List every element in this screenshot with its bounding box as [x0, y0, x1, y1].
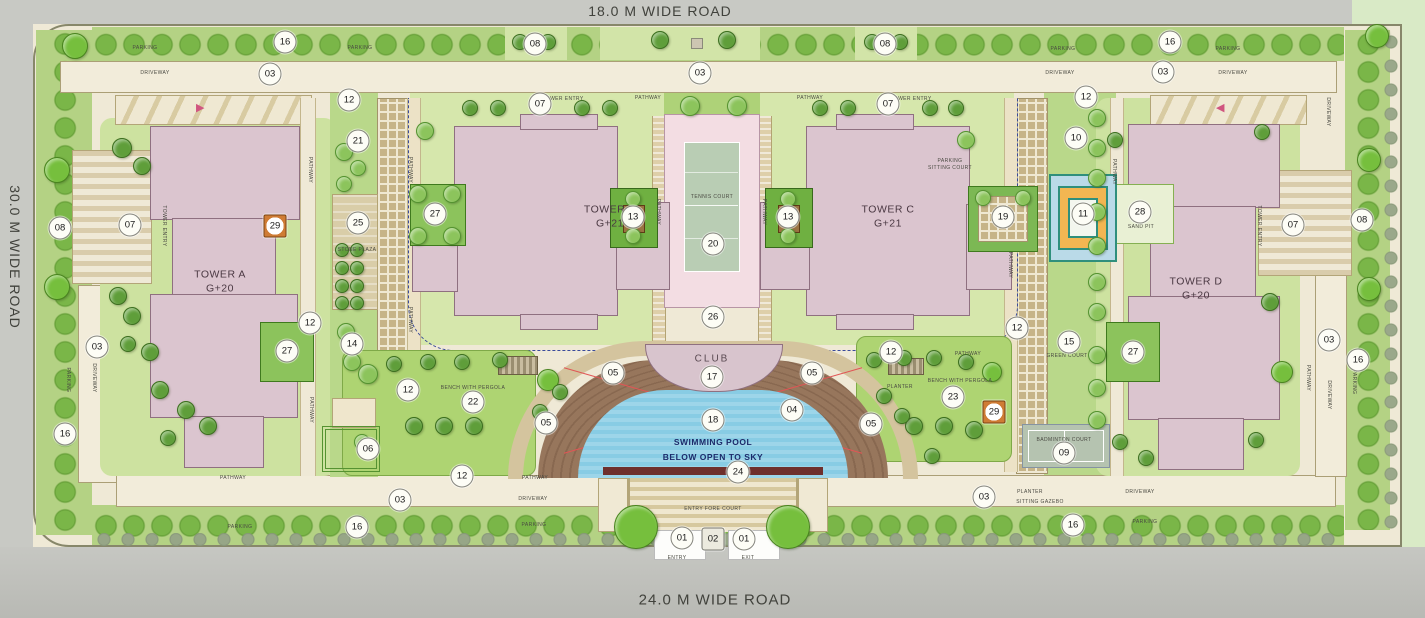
- plan-label: PARKING: [65, 368, 71, 393]
- plan-marker: 25: [347, 212, 370, 235]
- plan-marker: 20: [702, 233, 725, 256]
- tree: [336, 176, 352, 192]
- plan-marker: 05: [860, 413, 883, 436]
- plan-marker: 03: [1318, 329, 1341, 352]
- plan-label: PLANTER: [887, 384, 913, 390]
- tree: [335, 279, 349, 293]
- plan-label: DRIVEWAY: [140, 70, 169, 76]
- tower-c-label: TOWER C G+21: [862, 203, 915, 230]
- tower-d-name: TOWER D: [1170, 275, 1223, 289]
- plan-marker: 03: [973, 486, 996, 509]
- plan-label: DRIVEWAY: [1325, 97, 1331, 126]
- tree: [350, 279, 364, 293]
- plan-marker: 27: [424, 203, 447, 226]
- plan-marker: 10: [1065, 127, 1088, 150]
- plan-label: TENNIS COURT: [691, 194, 733, 200]
- plan-label: TOWER ENTRY: [1256, 205, 1262, 246]
- tree: [160, 430, 176, 446]
- tower-c-name: TOWER C: [862, 203, 915, 217]
- tree: [1271, 361, 1293, 383]
- plan-label: TOWER ENTRY: [161, 205, 167, 246]
- tree: [420, 354, 436, 370]
- plan-marker: 16: [1159, 31, 1182, 54]
- tree: [1088, 139, 1106, 157]
- tree: [462, 100, 478, 116]
- tree: [926, 350, 942, 366]
- plan-marker: 03: [389, 489, 412, 512]
- plan-label: CLUB: [695, 354, 730, 365]
- tree: [358, 364, 378, 384]
- plan-label: PATHWAY: [797, 95, 823, 101]
- tree: [1357, 148, 1381, 172]
- plan-marker: 18: [702, 409, 725, 432]
- tree: [718, 31, 736, 49]
- plan-marker: 08: [1351, 209, 1374, 232]
- tree: [44, 157, 70, 183]
- plan-marker: 15: [1058, 331, 1081, 354]
- plan-marker: 05: [535, 412, 558, 435]
- plan-marker: 12: [397, 379, 420, 402]
- plan-label: PATHWAY: [308, 397, 314, 423]
- plan-marker: 03: [689, 62, 712, 85]
- plan-label: SITTING COURT: [928, 165, 972, 171]
- plan-label: EXIT: [742, 555, 755, 561]
- plan-marker: 06: [357, 438, 380, 461]
- tree: [1088, 237, 1106, 255]
- tree: [350, 296, 364, 310]
- tree: [840, 100, 856, 116]
- plan-marker: 09: [1053, 442, 1076, 465]
- plan-label: PARKING: [522, 522, 547, 528]
- tree: [151, 381, 169, 399]
- tree: [1138, 450, 1154, 466]
- plan-marker: 01: [733, 528, 756, 551]
- tree: [1088, 346, 1106, 364]
- plan-label: PATHWAY: [1305, 365, 1311, 391]
- plan-label: PARKING: [133, 45, 158, 51]
- plan-marker: 11: [1072, 203, 1095, 226]
- plan-marker: 24: [727, 461, 750, 484]
- plan-marker: 16: [1062, 514, 1085, 537]
- plan-label: PATHWAY: [407, 157, 413, 183]
- plan-label: PATHWAY: [522, 475, 548, 481]
- plan-marker: 12: [338, 89, 361, 112]
- plan-label: ENTRY: [668, 555, 687, 561]
- plan-marker: 23: [942, 386, 965, 409]
- tree: [812, 100, 828, 116]
- plan-label: PARKING: [228, 524, 253, 530]
- tree: [454, 354, 470, 370]
- plan-label: PATHWAY: [220, 475, 246, 481]
- plan-label: PARKING: [938, 158, 963, 164]
- plan-marker: 21: [347, 130, 370, 153]
- tree: [1248, 432, 1264, 448]
- tree: [922, 100, 938, 116]
- plan-marker: 08: [874, 33, 897, 56]
- tree: [120, 336, 136, 352]
- plan-label: PARKING: [1133, 519, 1158, 525]
- tree: [552, 384, 568, 400]
- tree: [1088, 169, 1106, 187]
- tree: [965, 421, 983, 439]
- tree: [335, 261, 349, 275]
- tree: [876, 388, 892, 404]
- plan-marker: 26: [702, 306, 725, 329]
- plan-marker: 03: [86, 336, 109, 359]
- plan-label: PATHWAY: [955, 351, 981, 357]
- plan-label: DRIVEWAY: [1045, 70, 1074, 76]
- plan-marker: 05: [602, 362, 625, 385]
- plan-label: PLANTER: [1017, 489, 1043, 495]
- tree: [177, 401, 195, 419]
- plan-label: ENTRY FORE COURT: [684, 506, 742, 512]
- plan-marker: 16: [346, 516, 369, 539]
- tree: [614, 505, 658, 549]
- tree: [680, 96, 700, 116]
- plan-label: SWIMMING POOL: [674, 437, 752, 447]
- tree: [780, 228, 796, 244]
- plan-marker: 29: [264, 215, 287, 238]
- tree: [1107, 132, 1123, 148]
- tree: [1112, 434, 1128, 450]
- plan-label: PARKING: [348, 45, 373, 51]
- plan-marker: 13: [622, 206, 645, 229]
- plan-marker: 29: [983, 401, 1006, 424]
- plan-label: PATHWAY: [407, 307, 413, 333]
- plan-marker: 12: [1006, 317, 1029, 340]
- plan-label: PATHWAY: [307, 157, 313, 183]
- plan-marker: 27: [276, 340, 299, 363]
- plan-label: DRIVEWAY: [1326, 380, 1332, 409]
- plan-label: PATHWAY: [1111, 159, 1117, 185]
- tree: [435, 417, 453, 435]
- plan-label: PATHWAY: [635, 95, 661, 101]
- tower-d-label: TOWER D G+20: [1170, 275, 1223, 302]
- tower-c-floors: G+21: [862, 217, 915, 231]
- plan-label: DRIVEWAY: [518, 496, 547, 502]
- plan-label: GREEN COURT: [1046, 353, 1087, 359]
- tree: [335, 296, 349, 310]
- tree: [1365, 24, 1389, 48]
- plan-marker: 12: [880, 341, 903, 364]
- tree: [766, 505, 810, 549]
- tree: [1088, 109, 1106, 127]
- tree: [1088, 379, 1106, 397]
- tree: [350, 160, 366, 176]
- tree: [1088, 273, 1106, 291]
- tree: [44, 274, 70, 300]
- plan-marker: 17: [701, 366, 724, 389]
- plan-marker: 08: [49, 217, 72, 240]
- plan-label: BELOW OPEN TO SKY: [663, 452, 763, 462]
- tree: [1357, 277, 1381, 301]
- tree: [727, 96, 747, 116]
- plan-label: BENCH WITH PERGOLA: [928, 378, 992, 384]
- tower-a-label: TOWER A G+20: [194, 268, 246, 295]
- tree: [1015, 190, 1031, 206]
- plan-marker: 02: [702, 528, 725, 551]
- tree: [1261, 293, 1279, 311]
- tree: [1088, 303, 1106, 321]
- tree: [443, 185, 461, 203]
- plan-marker: 16: [274, 31, 297, 54]
- plan-marker: 04: [781, 399, 804, 422]
- plan-marker: 07: [1282, 214, 1305, 237]
- plan-label: PARKING: [1216, 46, 1241, 52]
- plan-marker: 03: [259, 63, 282, 86]
- plan-marker: 16: [54, 423, 77, 446]
- plan-label: PARKING: [1051, 46, 1076, 52]
- plan-marker: 22: [462, 391, 485, 414]
- tree: [957, 131, 975, 149]
- plan-label: SAND PIT: [1128, 224, 1154, 230]
- tree: [405, 417, 423, 435]
- site-plan-canvas: ▶ ◀: [0, 0, 1425, 618]
- tree: [492, 352, 508, 368]
- plan-label: DRIVEWAY: [1218, 70, 1247, 76]
- tree: [443, 227, 461, 245]
- plan-label: PATHWAY: [1007, 252, 1013, 278]
- tree: [62, 33, 88, 59]
- tree: [409, 185, 427, 203]
- tower-a-name: TOWER A: [194, 268, 246, 282]
- plan-marker: 05: [801, 362, 824, 385]
- road-label-top: 18.0 M WIDE ROAD: [588, 3, 732, 19]
- tree: [465, 417, 483, 435]
- plan-marker: 08: [524, 33, 547, 56]
- plan-label: PARKING: [1351, 370, 1357, 395]
- road-label-bottom: 24.0 M WIDE ROAD: [639, 592, 792, 609]
- tree: [1088, 411, 1106, 429]
- tree: [133, 157, 151, 175]
- plan-label: DRIVEWAY: [91, 363, 97, 392]
- plan-label: DRIVEWAY: [1125, 489, 1154, 495]
- tower-a-floors: G+20: [194, 282, 246, 296]
- plan-marker: 12: [451, 465, 474, 488]
- tree: [112, 138, 132, 158]
- plan-marker: 16: [1347, 349, 1370, 372]
- tree: [894, 408, 910, 424]
- plan-label: PATHWAY: [655, 199, 661, 225]
- plan-marker: 27: [1122, 341, 1145, 364]
- plan-marker: 07: [119, 214, 142, 237]
- plan-marker: 01: [671, 527, 694, 550]
- tree: [350, 261, 364, 275]
- tree: [416, 122, 434, 140]
- tree: [975, 190, 991, 206]
- plan-label: PATHWAY: [761, 199, 767, 225]
- plan-marker: 28: [1129, 201, 1152, 224]
- plan-marker: 12: [299, 312, 322, 335]
- tree: [409, 227, 427, 245]
- tree: [1254, 124, 1270, 140]
- tree: [141, 343, 159, 361]
- tree: [199, 417, 217, 435]
- plan-label: STONE PLAZA: [338, 247, 377, 253]
- plan-marker: 03: [1152, 61, 1175, 84]
- plan-marker: 07: [877, 93, 900, 116]
- tree: [651, 31, 669, 49]
- tree: [602, 100, 618, 116]
- plan-marker: 07: [529, 93, 552, 116]
- tree: [924, 448, 940, 464]
- plan-marker: 14: [341, 333, 364, 356]
- tree: [948, 100, 964, 116]
- plan-marker: 13: [777, 206, 800, 229]
- tower-d-floors: G+20: [1170, 289, 1223, 303]
- plan-marker: 19: [992, 206, 1015, 229]
- plan-marker: 12: [1075, 86, 1098, 109]
- tree: [935, 417, 953, 435]
- tree: [109, 287, 127, 305]
- road-label-left: 30.0 M WIDE ROAD: [7, 185, 23, 329]
- plan-label: SITTING GAZEBO: [1016, 499, 1064, 505]
- tree: [490, 100, 506, 116]
- tree: [386, 356, 402, 372]
- tree: [123, 307, 141, 325]
- tree: [574, 100, 590, 116]
